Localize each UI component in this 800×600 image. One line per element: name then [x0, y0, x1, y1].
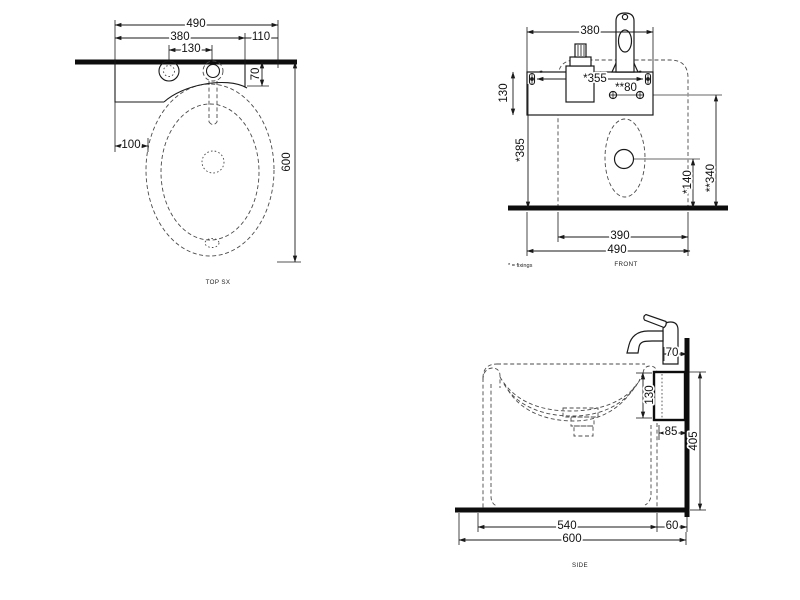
dim-side-60: 60 [666, 520, 679, 532]
dim-front-380: 380 [580, 25, 599, 37]
fixing-star-left: * [539, 69, 542, 78]
side-view-label: SIDE [572, 562, 588, 569]
top-view: 490 380 130 110 70 100 600 TOP SX [75, 18, 301, 286]
dim-front-140: *140 [682, 170, 694, 194]
dim-top-70: 70 [250, 68, 262, 81]
fixings-note: * = fixings [508, 263, 533, 269]
drawing-sheet: 490 380 130 110 70 100 600 TOP SX [0, 0, 800, 600]
dim-front-355: *355 [583, 73, 607, 85]
dim-front-390: 390 [610, 230, 629, 242]
side-view: 70 130 85 405 540 60 600 SIDE [455, 315, 706, 570]
front-extension-lines [527, 27, 688, 256]
top-extension-lines [115, 20, 301, 262]
technical-drawing: 490 380 130 110 70 100 600 TOP SX [0, 0, 800, 600]
dim-side-540: 540 [557, 520, 576, 532]
dim-top-600: 600 [281, 152, 293, 171]
shelf-side [654, 372, 685, 420]
dim-front-80: **80 [615, 82, 637, 94]
dim-top-490: 490 [186, 18, 205, 30]
dim-front-385: *385 [515, 138, 527, 162]
dim-side-600: 600 [562, 533, 581, 545]
top-view-label: TOP SX [206, 279, 231, 286]
drain-hole-top [202, 151, 224, 173]
top-dimensions: 490 380 130 110 70 100 600 [115, 18, 295, 262]
dim-front-490: 490 [607, 244, 626, 256]
shelf-top [115, 62, 247, 102]
dim-side-85: 85 [665, 426, 678, 438]
front-view: * * [498, 13, 728, 269]
dim-side-70: 70 [666, 347, 679, 359]
dim-top-100: 100 [121, 139, 140, 151]
dim-front-340: **340 [705, 164, 717, 192]
faucet-front [612, 13, 638, 72]
dim-top-110: 110 [252, 31, 270, 43]
drain-front [615, 150, 634, 169]
dim-side-130: 130 [644, 385, 656, 404]
side-body-outline [483, 364, 657, 508]
dim-top-380: 380 [170, 31, 189, 43]
top-basin-outline [146, 81, 274, 256]
front-view-label: FRONT [614, 261, 637, 268]
dim-top-130: 130 [181, 43, 200, 55]
fixing-star-right: * [638, 69, 641, 78]
dim-front-130: 130 [498, 83, 510, 102]
dim-side-405: 405 [688, 431, 700, 450]
